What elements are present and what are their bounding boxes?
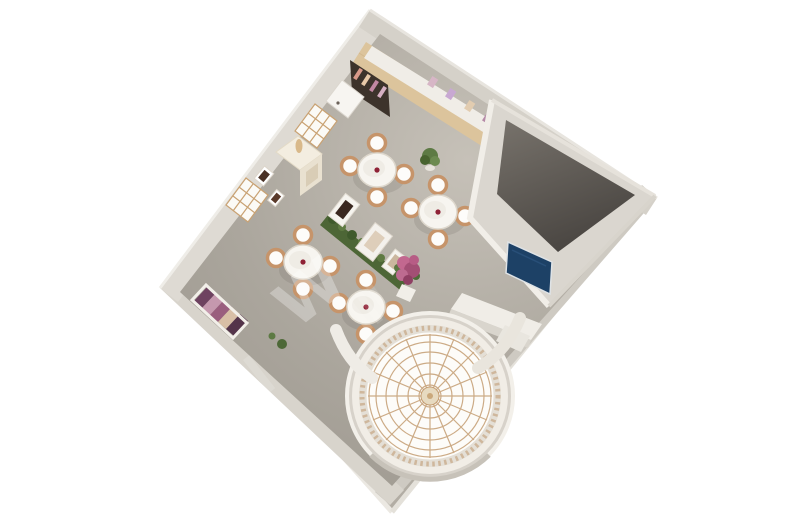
door-handle — [336, 101, 339, 104]
mantel-lamp — [296, 139, 303, 153]
shrub — [277, 339, 287, 349]
shrub — [269, 333, 276, 340]
render-viewport: W — [0, 0, 800, 530]
dome-cap-finial — [427, 393, 433, 399]
scene-canvas: W — [0, 0, 800, 530]
